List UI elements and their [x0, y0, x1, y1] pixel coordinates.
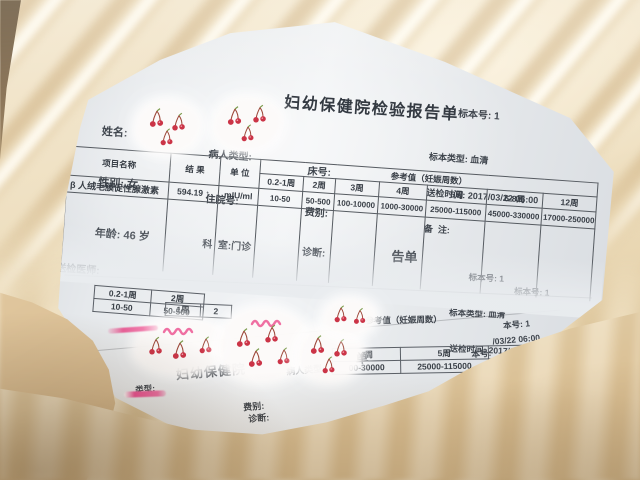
cherry-sticker [218, 101, 278, 147]
sample-no: 标本号: 1 [458, 105, 501, 123]
name-label: 姓名: [101, 126, 127, 140]
cherries-icon [224, 314, 304, 376]
photo-of-lab-reports: 妇幼保健院 病人类型: 单 类型: 费别: 诊断: 0.2-1周 -50 本号:… [0, 0, 640, 480]
col-header-result: 结 果 [169, 153, 221, 185]
sample-type-field: 标本类型: 血清 [429, 151, 542, 171]
cherries-icon [218, 101, 278, 147]
cherry-sticker [139, 104, 197, 150]
table-row: 1周 2 [165, 302, 232, 318]
cherry-sticker [326, 301, 374, 333]
cherry-sticker [224, 314, 304, 376]
sample-type-value: 血清 [470, 155, 489, 166]
sample-type-label: 标本类型: [429, 152, 469, 165]
cherries-icon [326, 301, 374, 333]
reference-table-offset: 1周 2 [165, 302, 233, 319]
cherries-icon [301, 330, 359, 378]
cherry-sticker [301, 330, 359, 378]
range-value: 50-500 [302, 191, 335, 210]
week-header: 1周 [165, 302, 201, 317]
diagnosis-label: 诊断: [248, 410, 270, 425]
col-header-unit: 单 位 [219, 157, 261, 189]
cherries-icon [139, 104, 197, 150]
report-title: 妇幼保健院检验报告单 [284, 88, 460, 124]
